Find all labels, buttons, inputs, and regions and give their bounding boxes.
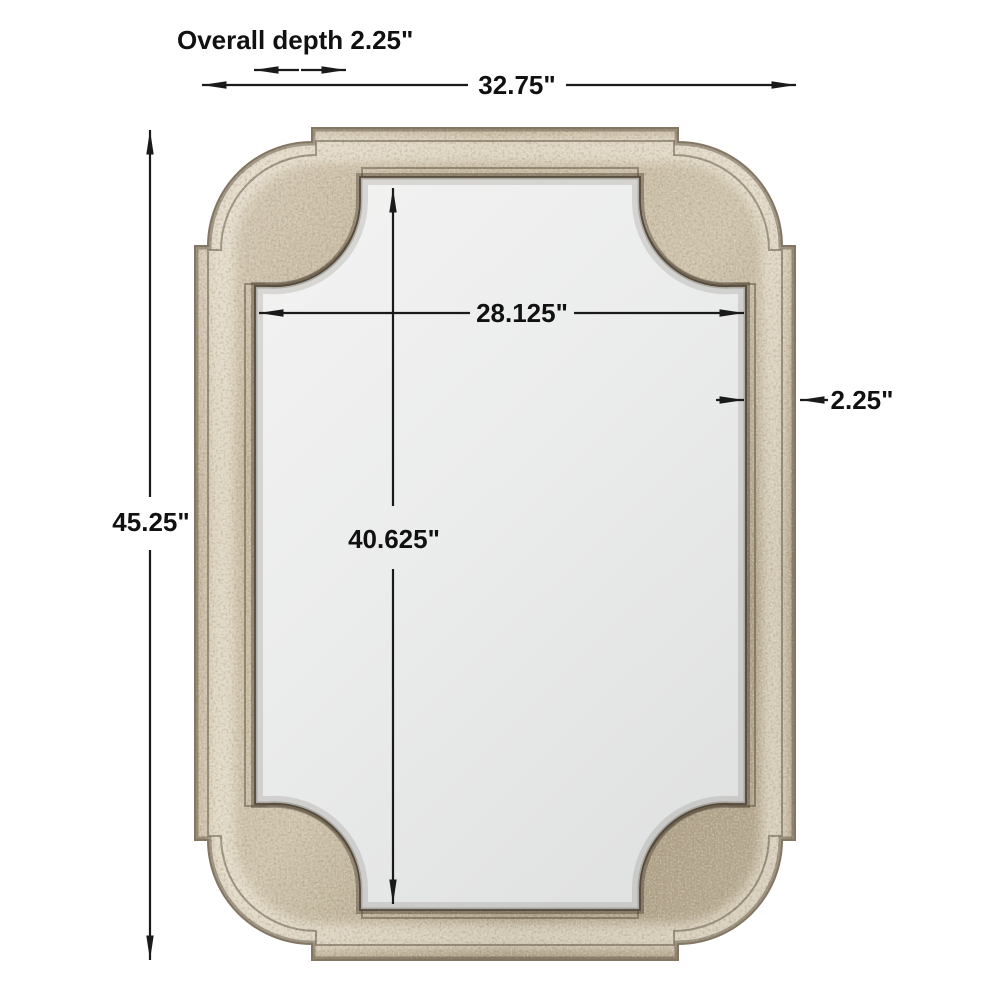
diagram-canvas: Overall depth 2.25" 32.75" 45.25" 28.125…	[0, 0, 1000, 1000]
mirror-dimension-diagram: Overall depth 2.25" 32.75" 45.25" 28.125…	[0, 0, 1000, 1000]
overall-height-label: 45.25"	[112, 507, 189, 537]
frame-thickness-label: 2.25"	[831, 385, 894, 415]
mirror-width-label: 28.125"	[476, 298, 568, 328]
overall-width-label: 32.75"	[478, 70, 555, 100]
mirror-height-label: 40.625"	[348, 524, 440, 554]
overall-depth-label: Overall depth 2.25"	[177, 25, 413, 55]
mirror-glass	[255, 177, 746, 910]
dimension-overall-depth: Overall depth 2.25"	[177, 25, 413, 55]
